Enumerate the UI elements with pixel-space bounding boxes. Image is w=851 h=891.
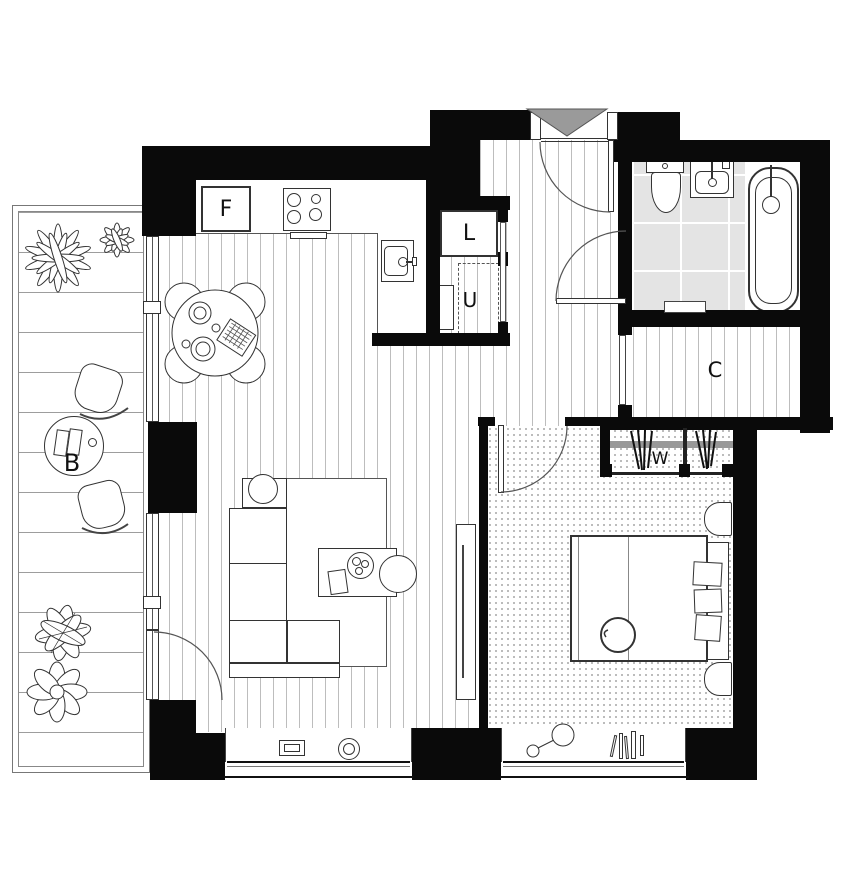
- wall-bedroom-right: [733, 430, 757, 732]
- wardrobe-track-cap-left: [601, 464, 612, 477]
- window-mullion-1: [143, 301, 161, 314]
- closet-doors: [500, 222, 506, 322]
- wall-living-bedroom-divider: [479, 417, 488, 732]
- wall-cupboard-bottom: [600, 417, 833, 430]
- hall-door-leaf: [556, 298, 626, 304]
- plant-pot-leaf-3: [355, 567, 363, 575]
- tv-screen: [462, 545, 464, 678]
- basin-accessory: [722, 161, 730, 169]
- balcony-label: B: [58, 450, 86, 476]
- hob-burner-3: [311, 194, 321, 204]
- utility-label: U: [458, 288, 482, 312]
- living-window-frame: [224, 776, 413, 778]
- hob-burner-2: [287, 210, 301, 224]
- sofa-body: [229, 508, 287, 663]
- wall-kitchen-nook-bottom: [372, 333, 510, 346]
- coffee-table-book: [327, 569, 348, 595]
- entry-post-right: [607, 112, 618, 140]
- bedroom-window-glass-1: [503, 761, 684, 763]
- wall-hall-stub-upper: [618, 303, 632, 335]
- wall-bottom-left-step2: [150, 733, 225, 780]
- linen-label: L: [455, 220, 483, 246]
- bed-pillow-2: [694, 589, 723, 614]
- closet-door-cap-3: [498, 322, 508, 333]
- wardrobe-track-cap-mid: [679, 464, 690, 477]
- wall-bottom-left-step1: [150, 700, 196, 733]
- pouf: [379, 555, 417, 593]
- wall-entry-top-band: [430, 110, 535, 140]
- bathroom-door-threshold: [664, 301, 706, 313]
- living-window-glass-1: [227, 761, 410, 763]
- bed-base: [570, 535, 708, 662]
- tv-unit: [456, 524, 476, 700]
- sofa-seam-1: [230, 563, 286, 564]
- balcony-window-lower: [146, 513, 159, 630]
- wall-entry-right: [610, 112, 680, 162]
- bedroom-sill-book-4: [631, 731, 636, 759]
- sofa-chaise: [287, 620, 340, 663]
- wall-bedroom-top-right: [565, 417, 610, 426]
- wall-bottom-right: [686, 728, 757, 780]
- shower-head: [762, 196, 780, 214]
- balcony-door-leaf: [146, 630, 159, 700]
- wall-right-outer: [800, 140, 830, 433]
- fridge-label: F: [212, 196, 240, 222]
- basin-tap: [708, 178, 717, 187]
- living-sill-bowl-inner: [343, 743, 355, 755]
- hob-burner-4: [309, 208, 322, 221]
- toilet-button: [662, 163, 668, 169]
- cupboard-label: C: [700, 356, 730, 384]
- bedroom-window-seat: [501, 728, 686, 762]
- hob-burner-1: [287, 193, 301, 207]
- sofa-front-edge: [229, 663, 340, 678]
- cupboard-sliding-door: [619, 335, 626, 405]
- sofa-cushion-round: [248, 474, 278, 504]
- plant-pot-leaf-2: [361, 560, 369, 568]
- living-window-seat: [225, 728, 412, 762]
- basin-tap-stem: [711, 162, 713, 179]
- bedroom-sill-book-5: [640, 735, 644, 756]
- wardrobe-track: [603, 472, 733, 475]
- closet-wall-top: [428, 196, 510, 210]
- wardrobe-label: W: [648, 448, 672, 470]
- utility-side-unit: [439, 285, 454, 330]
- closet-door-cap-1: [498, 210, 508, 222]
- oven-handle: [290, 232, 327, 239]
- bed-throw-pillow: [600, 617, 636, 653]
- bedroom-door-leaf: [498, 425, 504, 493]
- living-window-glass-2: [227, 766, 410, 767]
- living-sill-tray-inner: [284, 744, 300, 752]
- kitchen-tap-handle: [412, 257, 417, 266]
- entry-door-leaf: [608, 140, 614, 212]
- bed-pillow-1: [692, 561, 722, 586]
- window-mullion-2: [143, 596, 161, 609]
- wall-bottom-middle: [412, 728, 501, 780]
- wall-bathroom-bottom: [618, 310, 807, 327]
- bed-sheet-fold: [578, 537, 579, 660]
- wardrobe-track-cap-right: [722, 464, 733, 477]
- bedroom-sill-book-2: [619, 733, 623, 759]
- nightstand-bottom: [704, 662, 732, 696]
- wardrobe-rail: [610, 441, 733, 448]
- shower-hose: [770, 165, 772, 197]
- nightstand-top: [704, 502, 732, 536]
- entry-threshold: [541, 138, 608, 142]
- plant-pot-leaf-1: [352, 557, 361, 566]
- wall-bathroom-left: [618, 162, 632, 307]
- entry-post-left: [530, 112, 541, 140]
- balcony-window-upper: [146, 236, 159, 422]
- bedroom-window-glass-2: [503, 766, 684, 767]
- bedroom-window-frame: [500, 776, 689, 778]
- wall-kitchen-top: [142, 146, 437, 180]
- wall-left-mid-block: [148, 422, 197, 513]
- bed-pillow-3: [694, 614, 722, 642]
- balcony-cup: [88, 438, 97, 447]
- sofa-seam-2: [230, 620, 286, 621]
- floor-plan: B L U: [0, 0, 851, 891]
